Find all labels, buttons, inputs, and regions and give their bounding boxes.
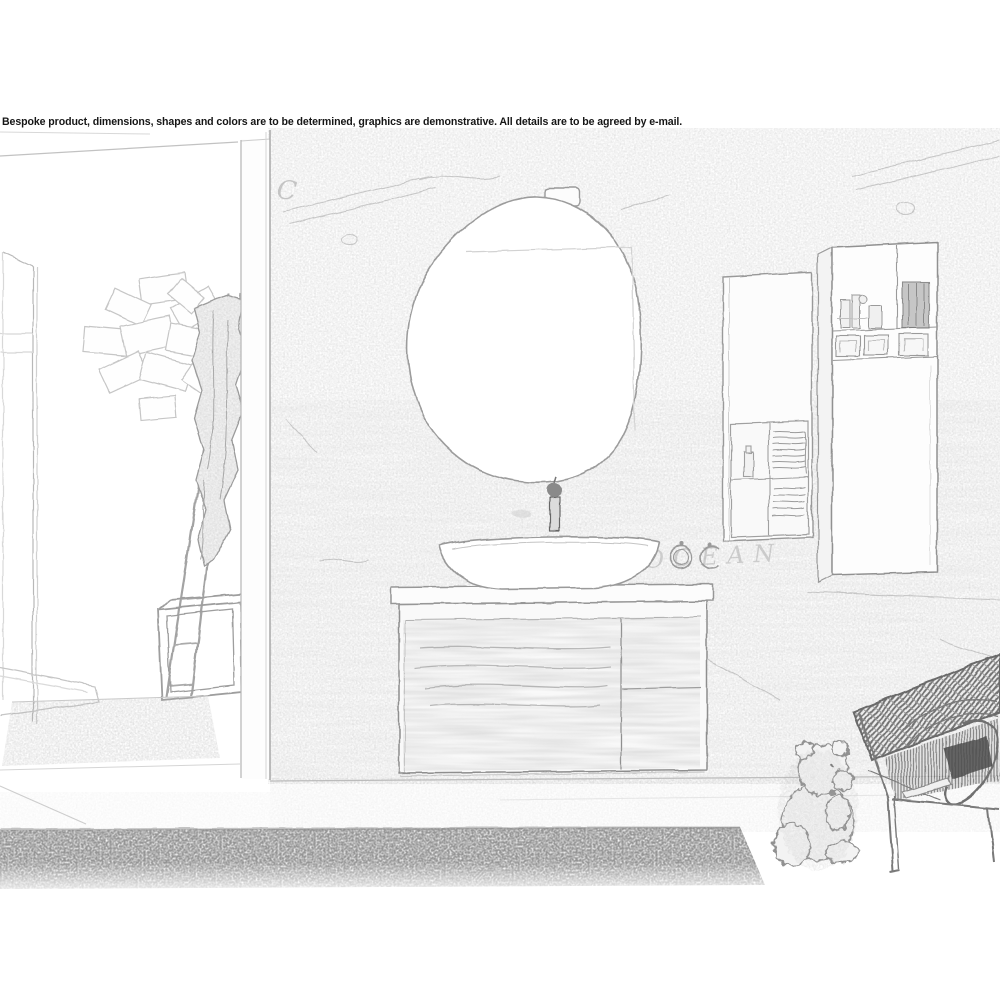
wall-graffiti-letter: C [275, 175, 298, 207]
ceiling-line [0, 142, 238, 156]
light-rug [2, 696, 220, 766]
bear-ear [832, 741, 848, 757]
disclaimer-text: Bespoke product, dimensions, shapes and … [2, 116, 682, 128]
wood-grain [403, 617, 700, 771]
sketch-render-page: Bespoke product, dimensions, shapes and … [0, 0, 1000, 1000]
ladder-with-towel [166, 293, 246, 697]
bathroom-sketch-scene: C OCEAN [0, 0, 1000, 1000]
left-room [0, 132, 252, 824]
frame-stool [158, 593, 252, 700]
vessel-sink [439, 536, 659, 589]
bear-fuzz-texture [778, 750, 858, 870]
dark-box [902, 283, 929, 328]
left-floor-line [0, 764, 240, 770]
crack-line [0, 132, 150, 134]
wall-cabinet-short [723, 272, 812, 541]
leaning-mirror [0, 252, 99, 724]
partition-wall [241, 130, 270, 780]
towel-texture [192, 295, 246, 566]
cabinet-side-panel [818, 247, 832, 582]
wall-cabinet-tall [818, 242, 937, 582]
small-compartments [836, 334, 928, 356]
